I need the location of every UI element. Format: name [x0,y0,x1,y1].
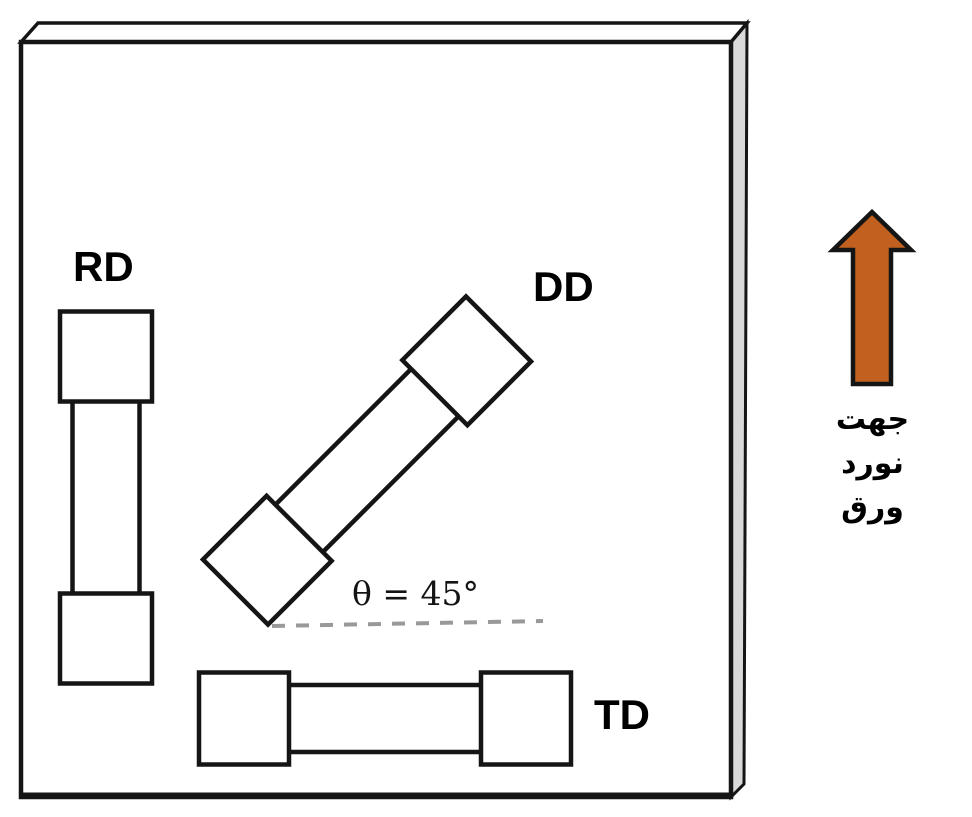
td-grip-left [199,673,289,765]
dd-label: DD [533,263,594,311]
rolling-direction-arrow-icon [833,212,911,384]
specimen-td [199,673,571,765]
caption-line-1: جهت [815,398,930,442]
td-grip-right [481,673,571,765]
sheet-side-edge [731,23,747,797]
rd-grip-top [60,312,152,402]
caption-line-2: نورد [815,442,930,486]
rd-grip-bottom [60,594,152,684]
caption-line-3: ورق [815,486,930,530]
specimen-rd [60,312,152,684]
figure-canvas: RD DD TD θ = 45° جهت نورد ورق [0,0,972,817]
sheet-top-edge [21,23,747,42]
rd-gauge-section [73,401,140,595]
rolling-direction-caption: جهت نورد ورق [815,398,930,530]
rd-label: RD [73,243,134,291]
td-gauge-section [288,685,482,752]
angle-label: θ = 45° [352,574,479,613]
td-label: TD [594,691,650,739]
